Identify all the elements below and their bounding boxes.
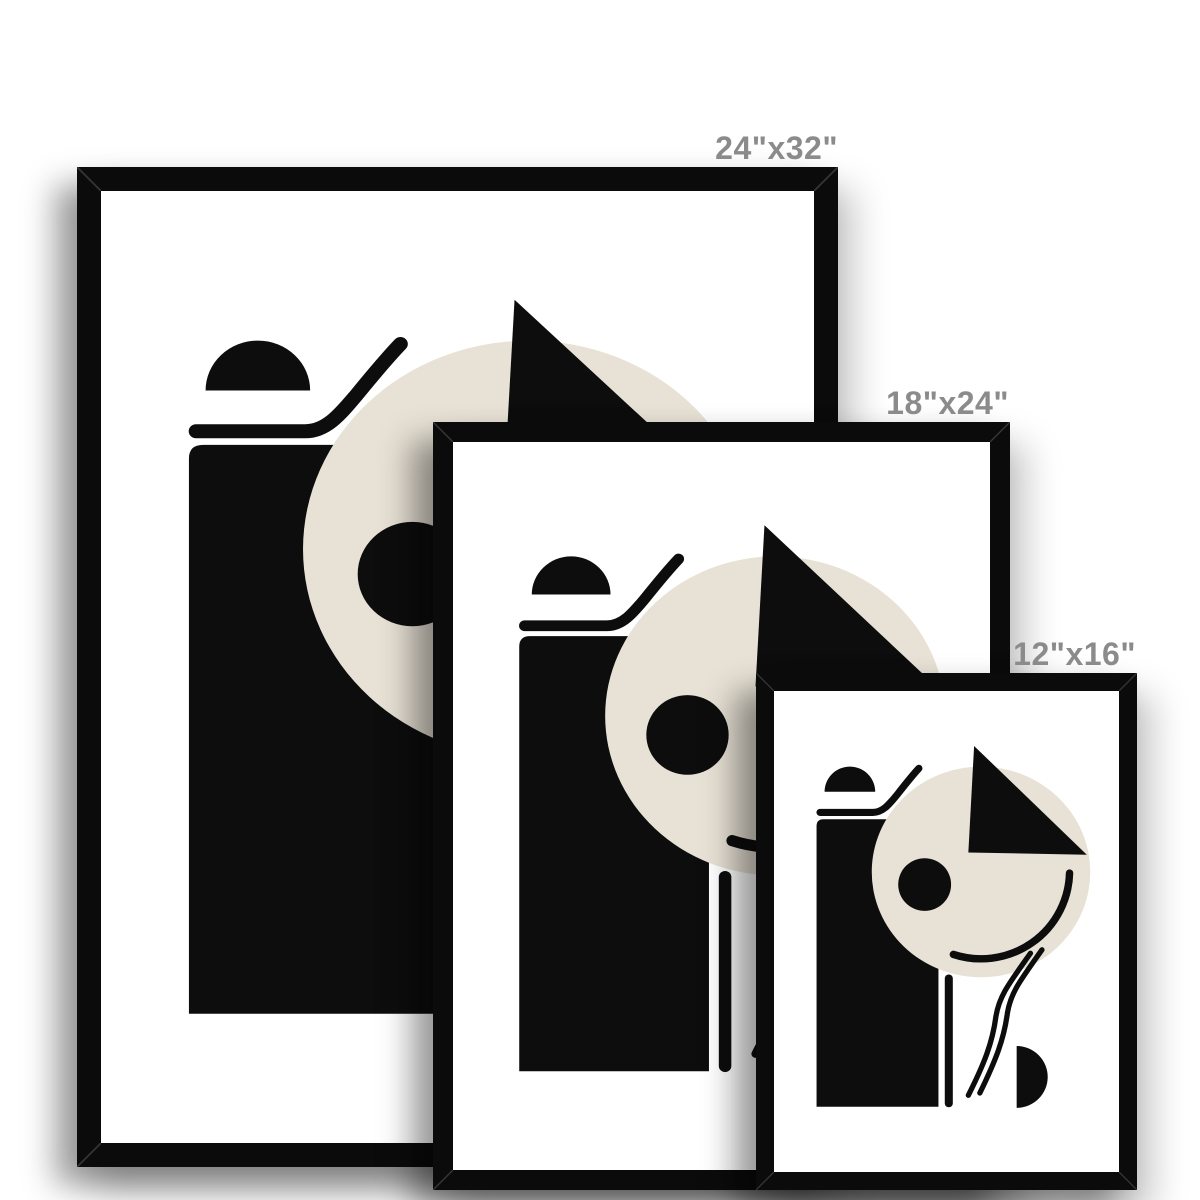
size-label-12x16: 12"x16" [1013,638,1136,672]
frame-12x16 [756,673,1137,1190]
product-mockup: 24"x32" 18"x24" 12"x16" [0,0,1200,1200]
size-label-18x24: 18"x24" [886,387,1009,421]
size-label-24x32: 24"x32" [715,132,838,166]
print-12x16 [774,691,1119,1172]
artwork-12x16 [774,691,1119,1172]
